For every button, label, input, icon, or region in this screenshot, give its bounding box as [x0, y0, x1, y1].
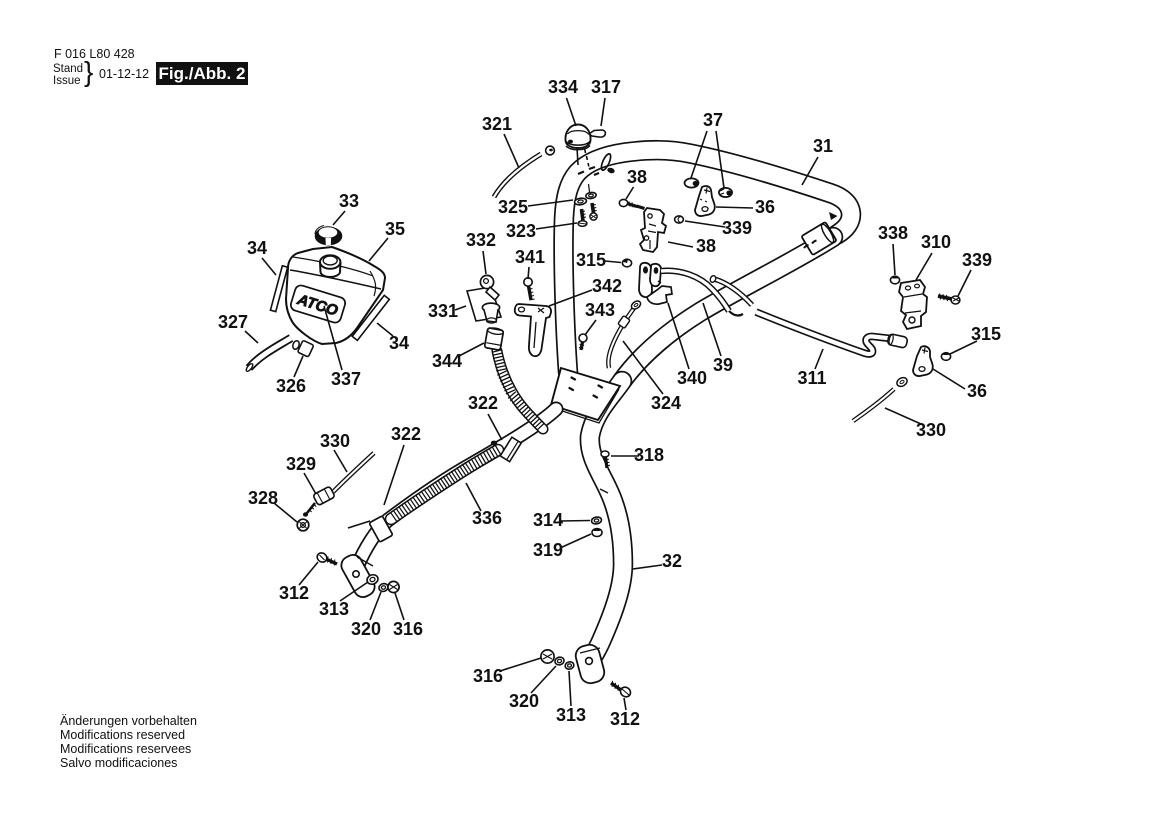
svg-text:311: 311 — [797, 368, 826, 388]
svg-text:316: 316 — [473, 666, 503, 686]
svg-text:Fig./Abb. 2: Fig./Abb. 2 — [159, 64, 246, 83]
svg-text:314: 314 — [533, 510, 563, 530]
svg-text:317: 317 — [591, 77, 621, 97]
svg-text:37: 37 — [703, 110, 723, 130]
svg-text:34: 34 — [247, 238, 267, 258]
svg-text:36: 36 — [755, 197, 775, 217]
svg-text:01-12-12: 01-12-12 — [99, 67, 149, 81]
svg-text:}: } — [84, 56, 93, 87]
svg-text:328: 328 — [248, 488, 278, 508]
svg-text:32: 32 — [662, 551, 682, 571]
svg-text:340: 340 — [677, 368, 707, 388]
svg-text:310: 310 — [921, 232, 951, 252]
svg-text:341: 341 — [515, 247, 545, 267]
svg-text:38: 38 — [696, 236, 716, 256]
svg-text:320: 320 — [509, 691, 539, 711]
svg-text:38: 38 — [627, 167, 647, 187]
svg-text:36: 36 — [967, 381, 987, 401]
svg-text:336: 336 — [472, 508, 502, 528]
svg-text:320: 320 — [351, 619, 381, 639]
svg-text:318: 318 — [634, 445, 664, 465]
svg-text:327: 327 — [218, 312, 248, 332]
svg-text:31: 31 — [813, 136, 833, 156]
svg-text:325: 325 — [498, 197, 528, 217]
svg-text:338: 338 — [878, 223, 908, 243]
svg-text:331: 331 — [428, 301, 458, 321]
svg-text:315: 315 — [576, 250, 606, 270]
svg-text:Änderungen vorbehalten: Änderungen vorbehalten — [60, 714, 197, 728]
svg-text:315: 315 — [971, 324, 1001, 344]
svg-text:334: 334 — [548, 77, 578, 97]
svg-text:321: 321 — [482, 114, 512, 134]
svg-text:319: 319 — [533, 540, 563, 560]
svg-text:316: 316 — [393, 619, 423, 639]
svg-text:344: 344 — [432, 351, 462, 371]
svg-text:312: 312 — [279, 583, 309, 603]
svg-text:339: 339 — [722, 218, 752, 238]
svg-text:337: 337 — [331, 369, 361, 389]
svg-text:F 016 L80 428: F 016 L80 428 — [54, 47, 135, 61]
svg-text:Issue: Issue — [53, 75, 81, 87]
svg-text:323: 323 — [506, 221, 536, 241]
svg-text:329: 329 — [286, 454, 316, 474]
svg-text:322: 322 — [391, 424, 421, 444]
svg-text:312: 312 — [610, 709, 640, 729]
svg-text:34: 34 — [389, 333, 409, 353]
svg-text:313: 313 — [319, 599, 349, 619]
svg-text:Stand: Stand — [53, 63, 83, 75]
svg-text:342: 342 — [592, 276, 622, 296]
svg-text:339: 339 — [962, 250, 992, 270]
svg-text:330: 330 — [320, 431, 350, 451]
svg-text:332: 332 — [466, 230, 496, 250]
svg-text:343: 343 — [585, 300, 615, 320]
svg-text:313: 313 — [556, 705, 586, 725]
svg-text:Salvo modificaciones: Salvo modificaciones — [60, 756, 177, 770]
svg-text:324: 324 — [651, 393, 681, 413]
svg-text:322: 322 — [468, 393, 498, 413]
svg-text:Modifications reserved: Modifications reserved — [60, 728, 185, 742]
svg-text:Modifications reservees: Modifications reservees — [60, 742, 191, 756]
svg-text:33: 33 — [339, 191, 359, 211]
svg-text:39: 39 — [713, 355, 733, 375]
svg-text:330: 330 — [916, 420, 946, 440]
svg-text:326: 326 — [276, 376, 306, 396]
svg-text:35: 35 — [385, 219, 405, 239]
